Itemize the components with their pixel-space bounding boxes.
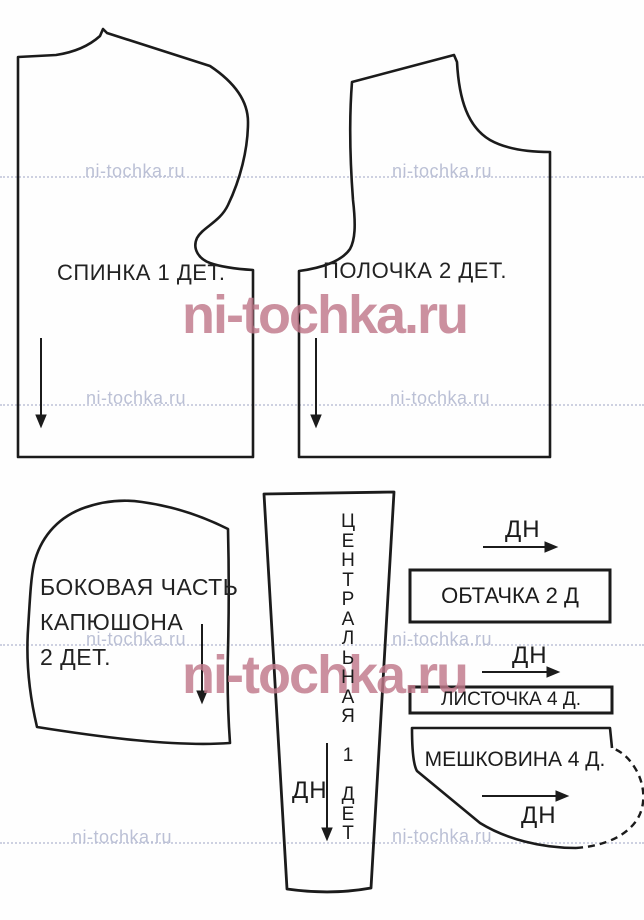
facing-piece-label: ОБТАЧКА 2 Д [410,570,610,622]
back-piece-label: СПИНКА 1 ДЕТ. [57,260,226,286]
pocket-bag-piece-label: МЕШКОВИНА 4 Д. [415,745,615,775]
pocket-bag-grain-label: ДН [521,802,557,830]
hood-side-piece-label: БОКОВАЯ ЧАСТЬ КАПЮШОНА 2 ДЕТ. [40,570,238,675]
welt-grain-label: ДН [512,642,548,670]
facing-grain-label: ДН [505,516,541,544]
hood-central-piece-label: Ц Е Н Т Р А Л Ь Н А Я 1 Д Е Т [334,512,362,844]
front-piece-outline [299,55,550,457]
sewing-pattern-sheet: ni-tochka.ru ni-tochka.ru ni-tochka.ru n… [0,0,644,920]
watermark-text-big: ni-tochka.ru [182,288,467,342]
hood-central-grain-label: ДН [292,777,328,805]
back-piece-outline [18,29,253,457]
welt-piece-label: ЛИСТОЧКА 4 Д. [410,687,612,713]
front-piece-label: ПОЛОЧКА 2 ДЕТ. [323,258,507,284]
